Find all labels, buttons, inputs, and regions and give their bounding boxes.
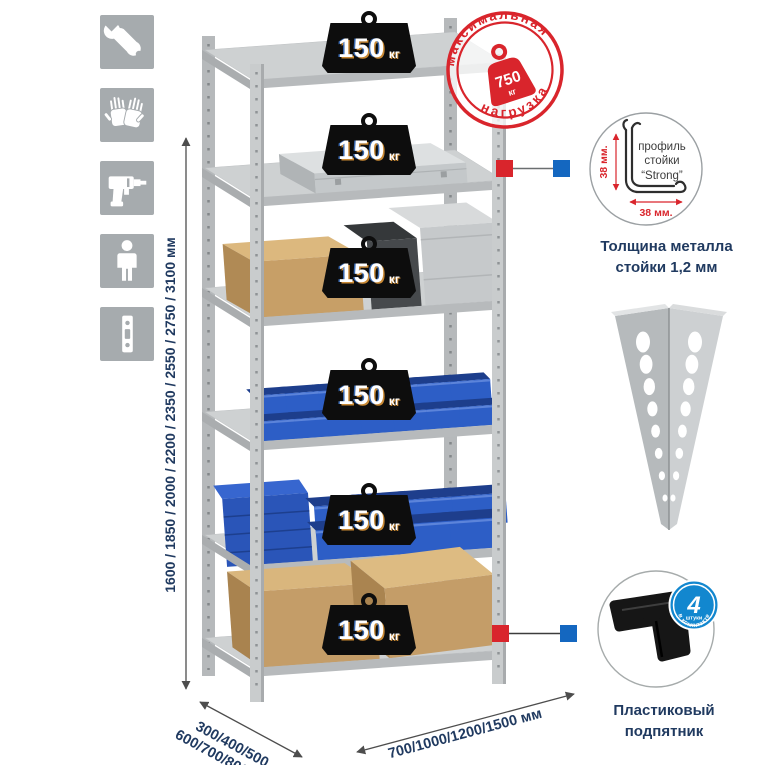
load-unit: кг	[389, 149, 400, 163]
width-dimension-line	[357, 694, 574, 752]
profile-dim-horizontal: 38 мм.	[639, 207, 672, 219]
load-value: 150	[338, 135, 385, 166]
load-value: 150	[338, 380, 385, 411]
foot-callout-connector	[492, 625, 577, 642]
load-unit: кг	[389, 629, 400, 643]
profile-label-line3: “Strong”	[641, 170, 683, 182]
count-badge: 4 штуки в комплекте	[670, 581, 719, 630]
profile-label-line2: стойки	[644, 155, 679, 167]
load-value: 150	[338, 615, 385, 646]
load-unit: кг	[389, 394, 400, 408]
load-unit: кг	[389, 272, 400, 286]
shelf-load-badge: 150кг	[322, 483, 416, 545]
plastic-foot-detail: 4 штуки в комплекте	[592, 563, 728, 699]
post-profile-detail: профиль стойки “Strong” 38 мм. 38 мм.	[586, 108, 710, 232]
load-value: 150	[338, 258, 385, 289]
load-value: 150	[338, 33, 385, 64]
shelf-load-badge: 150кг	[322, 11, 416, 73]
depth-dimension-line	[200, 702, 302, 757]
shelf-load-badge: 150кг	[322, 593, 416, 655]
shelf-load-badge: 150кг	[322, 113, 416, 175]
product-infographic: 1600 / 1850 / 2000 / 2200 / 2350 / 2550 …	[0, 0, 765, 765]
max-load-stamp: максимальная нагрузка 750 кг	[441, 6, 569, 134]
load-value: 150	[338, 505, 385, 536]
profile-label-line1: профиль	[638, 141, 686, 153]
shelf-load-badge: 150кг	[322, 236, 416, 298]
profile-callout-connector	[496, 160, 570, 177]
profile-dim-vertical: 38 мм.	[598, 145, 610, 178]
load-unit: кг	[389, 519, 400, 533]
shelf-load-badge: 150кг	[322, 358, 416, 420]
load-unit: кг	[389, 47, 400, 61]
